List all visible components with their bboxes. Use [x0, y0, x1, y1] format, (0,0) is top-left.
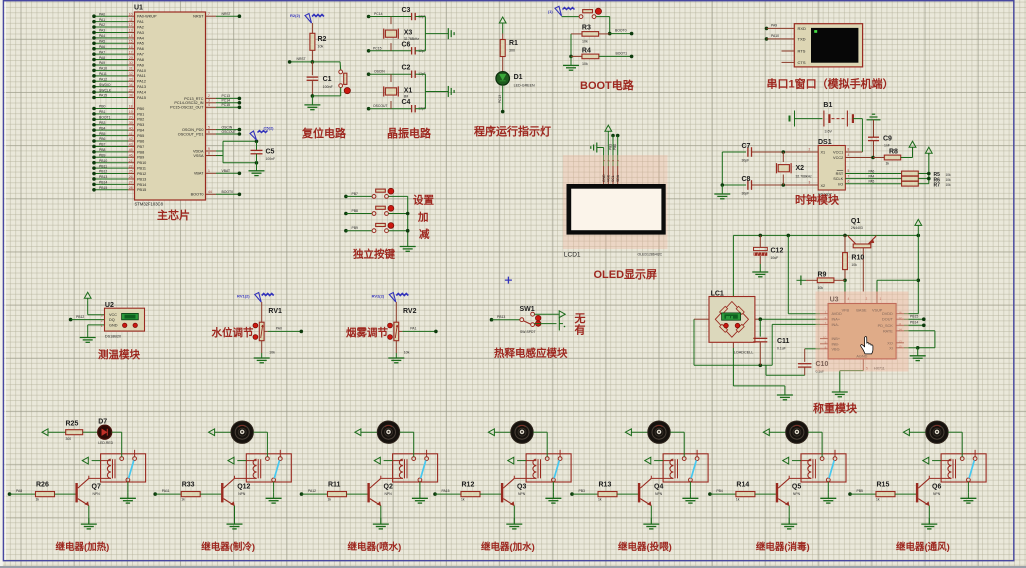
svg-text:Q5: Q5: [792, 484, 801, 491]
svg-text:X2: X2: [796, 165, 805, 172]
svg-text:Q2: Q2: [384, 484, 393, 491]
svg-text:PA7: PA7: [137, 53, 144, 57]
svg-text:PB9: PB9: [352, 226, 359, 230]
svg-text:PA9: PA9: [771, 24, 777, 28]
svg-text:DS1: DS1: [818, 139, 832, 146]
svg-text:PB2: PB2: [137, 118, 144, 122]
svg-text:NPN: NPN: [238, 492, 246, 496]
svg-text:OLED显示屏: OLED显示屏: [594, 268, 658, 281]
svg-text:32.768kHz: 32.768kHz: [796, 175, 813, 179]
svg-text:RV2(2): RV2(2): [372, 294, 385, 299]
svg-text:测温模块: 测温模块: [98, 348, 140, 361]
svg-text:34: 34: [129, 83, 133, 87]
svg-text:复位电路: 复位电路: [301, 126, 347, 140]
svg-text:10: 10: [129, 12, 133, 16]
svg-text:19: 19: [129, 110, 133, 114]
svg-text:43: 43: [129, 143, 133, 147]
svg-text:C1: C1: [323, 76, 332, 83]
svg-text:18: 18: [129, 105, 133, 109]
svg-text:时钟模块: 时钟模块: [795, 193, 840, 207]
svg-text:称重模块: 称重模块: [813, 401, 858, 415]
svg-text:PB1: PB1: [99, 110, 106, 114]
svg-text:C8: C8: [742, 176, 751, 183]
svg-text:I/O: I/O: [838, 182, 843, 186]
svg-text:STM32F103C8: STM32F103C8: [135, 202, 164, 207]
svg-text:水位调节: 水位调节: [211, 326, 254, 339]
svg-text:PB8: PB8: [137, 150, 144, 154]
svg-text:PB10: PB10: [137, 161, 146, 165]
svg-text:PB5: PB5: [857, 489, 864, 493]
svg-text:2N4403: 2N4403: [851, 226, 863, 230]
svg-text:PA1: PA1: [137, 20, 144, 24]
svg-text:NPN: NPN: [93, 492, 101, 496]
svg-text:OSCIN: OSCIN: [374, 70, 385, 74]
svg-text:R15: R15: [877, 481, 890, 488]
svg-text:X2: X2: [821, 184, 826, 188]
svg-text:RV1: RV1: [268, 308, 282, 315]
svg-text:R25: R25: [66, 421, 79, 428]
svg-text:R1: R1: [509, 40, 518, 47]
svg-text:PB3: PB3: [99, 121, 106, 125]
svg-text:PC13_RTC: PC13_RTC: [184, 97, 204, 101]
svg-text:PA1: PA1: [99, 18, 105, 22]
svg-text:PC14: PC14: [222, 99, 231, 103]
svg-text:PA0: PA0: [276, 327, 282, 331]
svg-text:6: 6: [848, 179, 850, 183]
svg-text:41: 41: [129, 132, 133, 136]
svg-text:300: 300: [509, 49, 515, 53]
svg-text:PB9: PB9: [137, 156, 144, 160]
svg-text:LCD1: LCD1: [564, 252, 581, 259]
svg-text:OSCIN: OSCIN: [222, 125, 233, 129]
svg-text:PA0: PA0: [99, 12, 105, 16]
svg-text:PA3: PA3: [137, 31, 144, 35]
svg-text:PB8: PB8: [99, 148, 106, 152]
svg-text:R33: R33: [182, 481, 195, 488]
svg-text:C5(2): C5(2): [264, 126, 275, 131]
svg-text:PA1: PA1: [410, 327, 416, 331]
svg-text:PB4: PB4: [137, 129, 144, 133]
svg-text:21: 21: [129, 159, 133, 163]
svg-text:设置: 设置: [413, 194, 434, 207]
svg-text:PA7: PA7: [99, 50, 105, 54]
svg-text:C2: C2: [402, 65, 411, 72]
svg-text:R11: R11: [328, 481, 341, 488]
svg-text:无: 无: [574, 312, 586, 325]
svg-text:VDDA: VDDA: [193, 149, 204, 153]
svg-text:PA4: PA4: [99, 34, 105, 38]
svg-text:39: 39: [129, 121, 133, 125]
svg-text:100nF: 100nF: [323, 85, 334, 89]
svg-text:OLED12864I2C: OLED12864I2C: [638, 253, 663, 257]
svg-text:PA6: PA6: [137, 47, 144, 51]
svg-text:PA15: PA15: [137, 96, 146, 100]
svg-text:22: 22: [129, 164, 133, 168]
svg-text:PA14: PA14: [137, 90, 146, 94]
svg-text:PA5: PA5: [869, 180, 875, 184]
svg-text:U2: U2: [105, 302, 114, 309]
svg-text:BOOT1: BOOT1: [99, 116, 111, 120]
svg-text:OSCOUT: OSCOUT: [222, 130, 237, 134]
svg-text:1k: 1k: [461, 498, 465, 502]
svg-text:BOOT1: BOOT1: [616, 52, 628, 56]
svg-text:C11: C11: [777, 338, 790, 345]
svg-text:PA5: PA5: [137, 42, 144, 46]
svg-text:PB12: PB12: [99, 170, 107, 174]
svg-text:DS18B20: DS18B20: [105, 334, 121, 338]
svg-text:PA8: PA8: [99, 56, 105, 60]
svg-text:VBAT: VBAT: [194, 172, 204, 176]
svg-text:6: 6: [208, 130, 210, 134]
svg-text:5: 5: [208, 125, 210, 129]
svg-text:OSCIN_PD0: OSCIN_PD0: [182, 128, 204, 132]
svg-text:NRST: NRST: [193, 15, 204, 19]
svg-text:0.1uF: 0.1uF: [777, 347, 786, 351]
svg-text:10k: 10k: [318, 45, 324, 49]
svg-text:R2(2): R2(2): [290, 13, 301, 18]
svg-text:3: 3: [809, 181, 811, 185]
svg-text:VCC1: VCC1: [833, 151, 843, 155]
svg-text:PB4: PB4: [716, 489, 723, 493]
svg-text:17: 17: [129, 50, 133, 54]
svg-text:14: 14: [129, 34, 133, 38]
svg-text:PA0-WKUP: PA0-WKUP: [137, 15, 157, 19]
svg-text:PB8: PB8: [352, 209, 359, 213]
svg-text:1k: 1k: [36, 498, 40, 502]
svg-text:10k: 10k: [269, 351, 275, 355]
svg-text:VCC2: VCC2: [833, 156, 843, 160]
svg-text:NRST: NRST: [222, 12, 231, 16]
svg-text:SCL: SCL: [611, 175, 615, 182]
svg-text:PB5: PB5: [99, 132, 106, 136]
svg-text:PC15-OSC32_OUT: PC15-OSC32_OUT: [170, 106, 204, 110]
svg-text:PB7: PB7: [352, 192, 359, 196]
svg-text:C7: C7: [742, 143, 751, 150]
svg-text:BOOT电路: BOOT电路: [580, 78, 635, 92]
svg-text:B1: B1: [823, 102, 832, 109]
svg-text:PA2: PA2: [99, 23, 105, 27]
svg-text:PB14: PB14: [910, 321, 918, 325]
svg-text:独立按键: 独立按键: [352, 248, 395, 261]
svg-text:45: 45: [129, 148, 133, 152]
svg-text:PB9: PB9: [99, 153, 106, 157]
svg-text:LOADCELL: LOADCELL: [734, 350, 754, 354]
svg-text:R10: R10: [851, 255, 864, 262]
svg-text:PA11: PA11: [137, 74, 146, 78]
svg-text:VSSA: VSSA: [193, 154, 204, 158]
svg-text:NPN: NPN: [385, 492, 393, 496]
svg-text:PC13: PC13: [498, 95, 502, 103]
svg-text:1nF: 1nF: [884, 144, 890, 148]
svg-text:OSCOUT: OSCOUT: [373, 104, 388, 108]
svg-text:40: 40: [129, 126, 133, 130]
svg-text:减: 减: [419, 228, 430, 241]
svg-text:30: 30: [129, 61, 133, 65]
svg-text:R2: R2: [318, 36, 327, 43]
svg-text:PB13: PB13: [137, 177, 146, 181]
svg-text:PB3: PB3: [579, 489, 586, 493]
svg-text:1k: 1k: [736, 498, 740, 502]
svg-text:26: 26: [129, 175, 133, 179]
svg-text:程序运行指示灯: 程序运行指示灯: [474, 124, 551, 138]
svg-text:PB15: PB15: [99, 186, 107, 190]
svg-text:主芯片: 主芯片: [157, 208, 190, 222]
svg-text:有: 有: [575, 323, 586, 337]
svg-text:C12: C12: [771, 248, 784, 255]
svg-text:16: 16: [129, 45, 133, 49]
svg-text:PB13: PB13: [99, 175, 107, 179]
svg-text:NPN: NPN: [518, 492, 526, 496]
svg-text:串口1窗口（模拟手机端）: 串口1窗口（模拟手机端）: [767, 77, 894, 91]
svg-text:PA10: PA10: [137, 69, 146, 73]
svg-text:SW-SPDT: SW-SPDT: [520, 330, 536, 334]
svg-text:PB0: PB0: [137, 107, 144, 111]
svg-text:PB13: PB13: [497, 315, 505, 319]
svg-text:OSCOUT_PD1: OSCOUT_PD1: [178, 132, 204, 136]
svg-text:LED-RED: LED-RED: [98, 441, 113, 445]
svg-text:30pF: 30pF: [742, 159, 750, 163]
svg-text:NPN: NPN: [655, 492, 663, 496]
svg-text:15: 15: [129, 40, 133, 44]
svg-text:PA12: PA12: [137, 80, 146, 84]
svg-text:PC15: PC15: [222, 103, 231, 107]
svg-text:12: 12: [129, 23, 133, 27]
svg-text:4: 4: [848, 153, 850, 157]
svg-text:30pF: 30pF: [742, 192, 750, 196]
svg-text:PB6: PB6: [137, 139, 144, 143]
svg-text:PB1: PB1: [137, 112, 144, 116]
svg-text:25: 25: [129, 170, 133, 174]
svg-text:10k: 10k: [946, 178, 952, 182]
svg-text:PB4: PB4: [99, 126, 106, 130]
svg-text:4: 4: [208, 103, 210, 107]
svg-text:GND: GND: [602, 174, 606, 182]
svg-text:PA12: PA12: [99, 77, 107, 81]
svg-text:Q4: Q4: [654, 484, 663, 491]
svg-text:PA8: PA8: [16, 489, 22, 493]
svg-text:PB12: PB12: [137, 172, 146, 176]
svg-text:28: 28: [129, 186, 133, 190]
svg-text:GND: GND: [109, 323, 118, 327]
svg-text:C5: C5: [266, 149, 275, 156]
svg-text:加: 加: [417, 211, 429, 224]
svg-text:3.6V: 3.6V: [825, 130, 833, 134]
svg-text:1k: 1k: [886, 162, 890, 166]
svg-text:Q12: Q12: [237, 484, 250, 491]
svg-text:C9: C9: [883, 136, 892, 143]
svg-text:PA12: PA12: [308, 489, 316, 493]
svg-text:PA13: PA13: [137, 85, 146, 89]
svg-text:38: 38: [129, 94, 133, 98]
svg-text:C3: C3: [402, 7, 411, 14]
svg-text:PC14: PC14: [374, 12, 383, 16]
svg-text:RST: RST: [836, 172, 844, 176]
svg-text:27: 27: [129, 181, 133, 185]
svg-text:PB7: PB7: [137, 145, 144, 149]
svg-text:10k: 10k: [946, 173, 952, 177]
svg-text:42: 42: [129, 137, 133, 141]
svg-text:BOOT0: BOOT0: [191, 193, 204, 197]
svg-text:U1: U1: [134, 5, 143, 12]
svg-text:D1: D1: [514, 74, 523, 81]
svg-text:继电器(消毒): 继电器(消毒): [756, 541, 810, 553]
svg-text:PA6: PA6: [869, 169, 875, 173]
svg-text:29: 29: [129, 56, 133, 60]
svg-text:PB5: PB5: [137, 134, 144, 138]
svg-text:10k: 10k: [946, 183, 952, 187]
svg-text:10k: 10k: [582, 62, 588, 66]
svg-text:TXD: TXD: [798, 36, 806, 41]
svg-text:37: 37: [129, 88, 133, 92]
svg-text:继电器(喷水): 继电器(喷水): [348, 541, 402, 553]
svg-text:PA15: PA15: [442, 489, 450, 493]
svg-text:Q3: Q3: [517, 484, 526, 491]
svg-text:PB11: PB11: [137, 167, 146, 171]
svg-text:R26: R26: [36, 481, 49, 488]
svg-text:BOOT0: BOOT0: [615, 29, 627, 33]
svg-text:PB6: PB6: [99, 137, 106, 141]
svg-text:7: 7: [848, 174, 850, 178]
svg-text:PA11: PA11: [99, 72, 107, 76]
svg-text:1k: 1k: [876, 498, 880, 502]
svg-text:1k: 1k: [328, 498, 332, 502]
svg-text:2: 2: [809, 148, 811, 152]
svg-text:R14: R14: [736, 481, 749, 488]
svg-text:继电器(加水): 继电器(加水): [481, 541, 535, 553]
svg-text:R3: R3: [582, 25, 591, 32]
svg-text:PA11: PA11: [162, 489, 170, 493]
svg-text:R13: R13: [599, 481, 612, 488]
svg-text:7: 7: [208, 12, 210, 16]
svg-text:NRST: NRST: [297, 57, 306, 61]
svg-text:PC14-OSC32_IN: PC14-OSC32_IN: [174, 101, 203, 105]
svg-text:CTS: CTS: [798, 60, 806, 65]
svg-text:RV2: RV2: [403, 308, 417, 315]
svg-text:R7: R7: [934, 182, 941, 188]
svg-text:RV1(2): RV1(2): [237, 294, 250, 299]
svg-text:PC15: PC15: [373, 46, 382, 50]
svg-text:44: 44: [208, 190, 212, 194]
svg-text:X1: X1: [404, 87, 413, 94]
svg-text:8: 8: [208, 151, 210, 155]
svg-text:10k: 10k: [851, 263, 857, 267]
svg-text:DQ: DQ: [109, 318, 115, 322]
svg-text:1k: 1k: [598, 498, 602, 502]
svg-text:PB11: PB11: [99, 164, 107, 168]
svg-text:继电器(加热): 继电器(加热): [56, 541, 110, 553]
svg-text:PA9: PA9: [99, 61, 105, 65]
svg-text:SWDIO: SWDIO: [99, 83, 111, 87]
svg-text:X3: X3: [404, 29, 413, 36]
svg-text:PA2: PA2: [137, 25, 144, 29]
svg-text:33: 33: [129, 77, 133, 81]
svg-text:88.8: 88.8: [726, 316, 733, 320]
svg-text:PA4: PA4: [137, 36, 144, 40]
svg-text:NPN: NPN: [793, 492, 801, 496]
svg-text:PA10: PA10: [99, 67, 107, 71]
svg-text:PB7: PB7: [99, 143, 106, 147]
svg-text:PB14: PB14: [137, 183, 146, 187]
svg-text:X1: X1: [821, 151, 826, 155]
svg-text:300: 300: [66, 437, 72, 441]
svg-text:PA5: PA5: [99, 40, 105, 44]
svg-text:PB10: PB10: [99, 159, 107, 163]
svg-text:(1): (1): [548, 10, 553, 14]
svg-text:Q6: Q6: [932, 484, 941, 491]
svg-text:31: 31: [129, 67, 133, 71]
svg-text:C6: C6: [402, 41, 411, 48]
svg-text:5: 5: [848, 169, 850, 173]
svg-text:VCC: VCC: [109, 313, 117, 317]
svg-text:20: 20: [129, 116, 133, 120]
svg-text:SWCLK: SWCLK: [99, 88, 112, 92]
svg-text:PA3: PA3: [99, 29, 105, 33]
svg-text:10k: 10k: [582, 40, 588, 44]
svg-text:Q7: Q7: [92, 484, 101, 491]
svg-text:PA9: PA9: [137, 63, 144, 67]
svg-text:PA8: PA8: [137, 58, 144, 62]
svg-text:1k: 1k: [181, 498, 185, 502]
svg-text:PB0: PB0: [99, 105, 106, 109]
svg-text:D7: D7: [98, 418, 107, 425]
svg-text:Q1: Q1: [851, 218, 860, 225]
svg-text:PB15: PB15: [137, 188, 146, 192]
svg-text:SCLK: SCLK: [833, 177, 843, 181]
svg-text:PB15: PB15: [910, 314, 918, 318]
svg-text:PA6: PA6: [99, 45, 105, 49]
svg-text:PC13: PC13: [222, 94, 231, 98]
svg-text:继电器(制冷): 继电器(制冷): [201, 541, 255, 553]
svg-text:3: 3: [208, 99, 210, 103]
svg-text:10k: 10k: [818, 286, 824, 290]
svg-text:RTS: RTS: [798, 49, 806, 54]
svg-text:BOOT0: BOOT0: [222, 190, 234, 194]
svg-text:PA10: PA10: [771, 34, 779, 38]
svg-text:32.768kHz: 32.768kHz: [404, 37, 420, 41]
svg-text:C4: C4: [402, 99, 411, 106]
svg-text:8: 8: [848, 148, 850, 152]
svg-text:9: 9: [208, 147, 210, 151]
svg-text:R9: R9: [818, 271, 827, 278]
svg-text:晶振电路: 晶振电路: [387, 126, 432, 140]
svg-text:SDA: SDA: [616, 174, 620, 182]
svg-text:32: 32: [129, 72, 133, 76]
svg-text:LED-GREEN: LED-GREEN: [514, 84, 535, 88]
svg-text:PB14: PB14: [99, 181, 107, 185]
svg-text:10uF: 10uF: [771, 256, 779, 260]
svg-text:RXD: RXD: [798, 26, 807, 31]
svg-text:8M: 8M: [404, 95, 409, 99]
svg-text:PB3: PB3: [137, 123, 144, 127]
svg-text:46: 46: [129, 153, 133, 157]
svg-text:100nF: 100nF: [266, 157, 276, 161]
svg-text:VBAT: VBAT: [222, 169, 231, 173]
svg-text:10k: 10k: [404, 351, 410, 355]
svg-text:PA4: PA4: [869, 175, 875, 179]
svg-text:11: 11: [129, 18, 133, 22]
svg-text:2: 2: [208, 94, 210, 98]
svg-text:R12: R12: [462, 481, 475, 488]
svg-text:NPN: NPN: [933, 492, 941, 496]
svg-text:PA15: PA15: [99, 94, 107, 98]
svg-text:R8: R8: [889, 149, 898, 156]
svg-text:继电器(投喂): 继电器(投喂): [618, 541, 672, 553]
svg-text:PB0: PB0: [613, 144, 617, 150]
svg-text:PB12: PB12: [76, 315, 84, 319]
svg-text:热释电感应模块: 热释电感应模块: [494, 347, 568, 360]
svg-text:烟雾调节: 烟雾调节: [346, 326, 388, 339]
svg-text:1: 1: [208, 169, 210, 173]
